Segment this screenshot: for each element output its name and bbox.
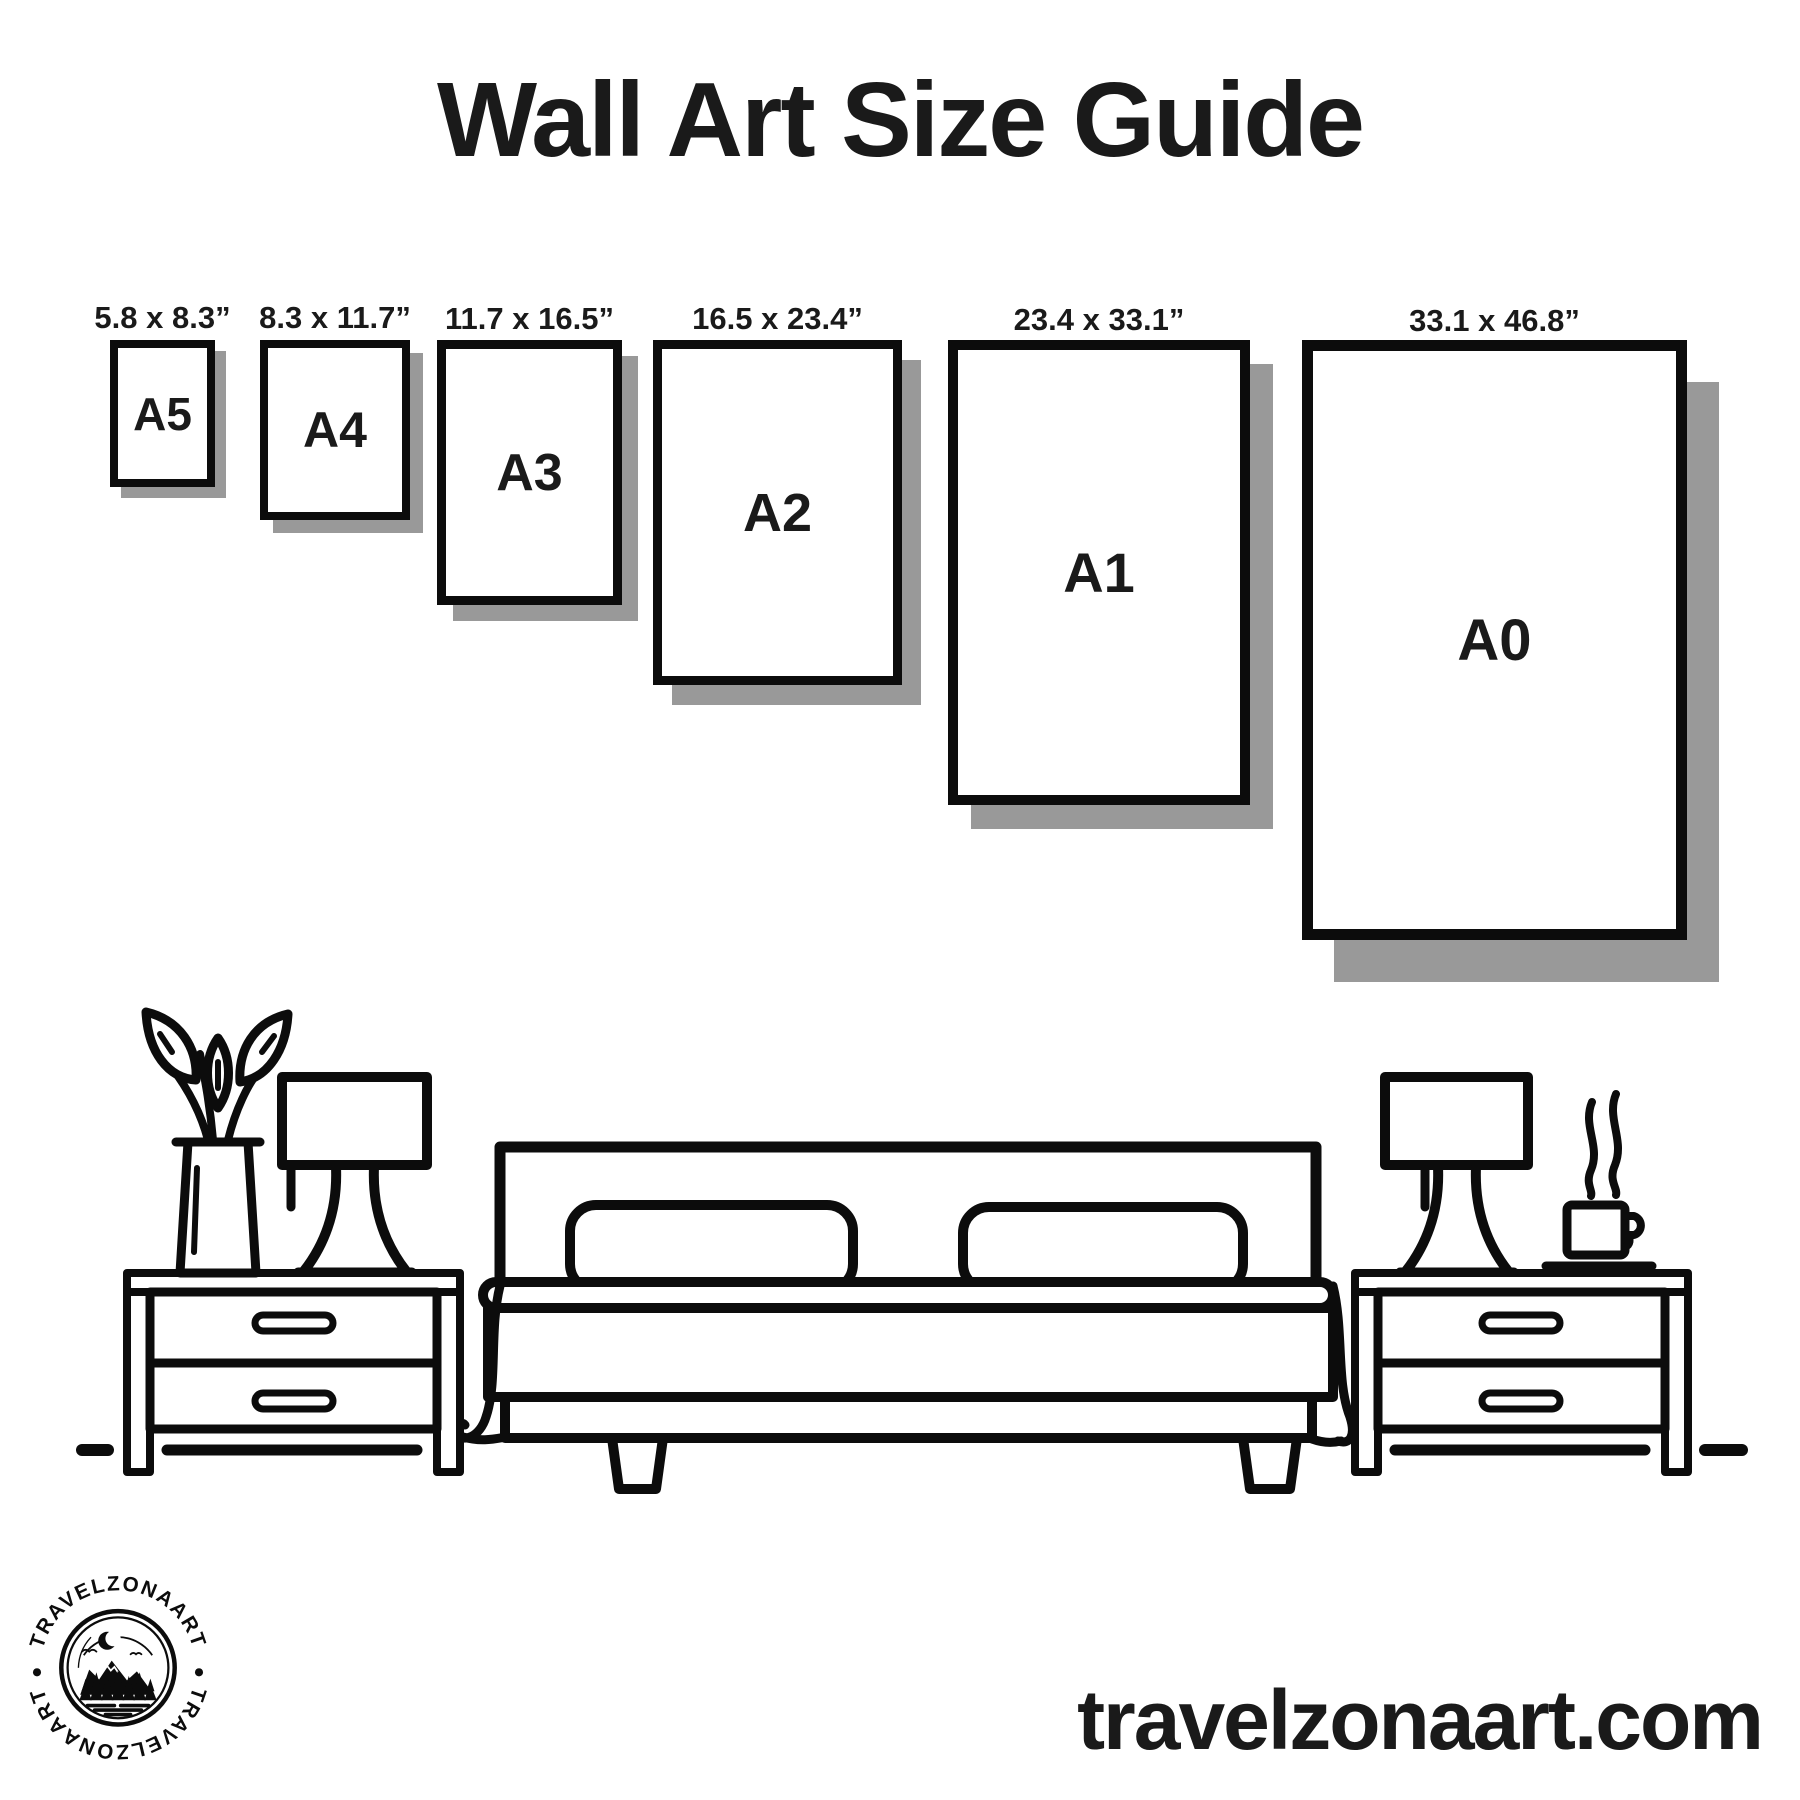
page-title: Wall Art Size Guide: [0, 62, 1800, 179]
nightstand-right-icon: [1355, 1273, 1688, 1472]
size-dimensions-label: 23.4 x 33.1”: [1014, 302, 1185, 338]
steam-icon: [1612, 1094, 1618, 1195]
drawer-handle: [1482, 1393, 1560, 1409]
bed-leg: [612, 1438, 663, 1489]
bed-base: [505, 1397, 1312, 1438]
size-dimensions-label: 11.7 x 16.5”: [445, 301, 614, 337]
size-name-label: A2: [743, 482, 812, 544]
plant-icon: [146, 1012, 288, 1273]
bed-leg: [1243, 1438, 1297, 1489]
bird-icon: [82, 1650, 96, 1652]
steam-icon: [1589, 1102, 1594, 1196]
table-lamp-icon: [282, 1077, 427, 1272]
bird-icon: [131, 1653, 142, 1654]
bed-icon: [456, 1147, 1352, 1489]
lamp-stem: [304, 1167, 336, 1271]
badge-dot: [33, 1668, 41, 1676]
poster: Wall Art Size Guide 5.8 x 8.3” A5 8.3 x …: [0, 0, 1800, 1800]
lamp-stem: [1476, 1167, 1508, 1271]
size-card-a0: 33.1 x 46.8” A0: [1302, 340, 1687, 940]
website-url: travelzonaart.com: [1077, 1678, 1762, 1762]
size-dimensions-label: 33.1 x 46.8”: [1409, 303, 1580, 339]
blanket-drape: [1312, 1439, 1341, 1442]
size-name-label: A1: [1063, 540, 1135, 605]
size-card-a4: 8.3 x 11.7” A4: [260, 340, 410, 520]
size-card-a5: 5.8 x 8.3” A5: [110, 340, 215, 487]
coffee-cup-icon: [1546, 1094, 1652, 1266]
table-lamp-icon: [1385, 1077, 1528, 1272]
size-name-label: A3: [496, 443, 562, 503]
lamp-shade: [282, 1077, 427, 1165]
size-dimensions-label: 16.5 x 23.4”: [692, 301, 863, 337]
bedroom-illustration: [0, 990, 1800, 1510]
size-dimensions-label: 5.8 x 8.3”: [94, 300, 230, 336]
blanket-drape: [463, 1437, 506, 1440]
lamp-stem: [374, 1167, 406, 1271]
lamp-shade: [1385, 1077, 1528, 1165]
badge-inner-ring: [68, 1617, 169, 1718]
brand-logo: TRAVELZONAART TRAVELZONAART: [28, 1558, 208, 1774]
size-card-a2: 16.5 x 23.4” A2: [653, 340, 902, 685]
badge-dot: [195, 1668, 203, 1676]
drawer-handle: [255, 1315, 333, 1331]
drawer-handle: [255, 1393, 333, 1409]
size-card-a3: 11.7 x 16.5” A3: [437, 340, 622, 605]
nightstand-left-icon: [127, 1273, 460, 1472]
mug-body: [1567, 1205, 1625, 1255]
badge-outer-ring: [61, 1611, 174, 1724]
size-dimensions-label: 8.3 x 11.7”: [259, 300, 411, 336]
size-name-label: A0: [1457, 607, 1531, 674]
size-name-label: A4: [303, 401, 367, 459]
mattress: [488, 1308, 1333, 1397]
drawer-handle: [1482, 1315, 1560, 1331]
moon-cut: [105, 1631, 120, 1646]
size-card-a1: 23.4 x 33.1” A1: [948, 340, 1250, 805]
badge-mountain-scene: [78, 1631, 156, 1715]
vase-highlight: [194, 1168, 197, 1252]
size-name-label: A5: [133, 387, 192, 441]
